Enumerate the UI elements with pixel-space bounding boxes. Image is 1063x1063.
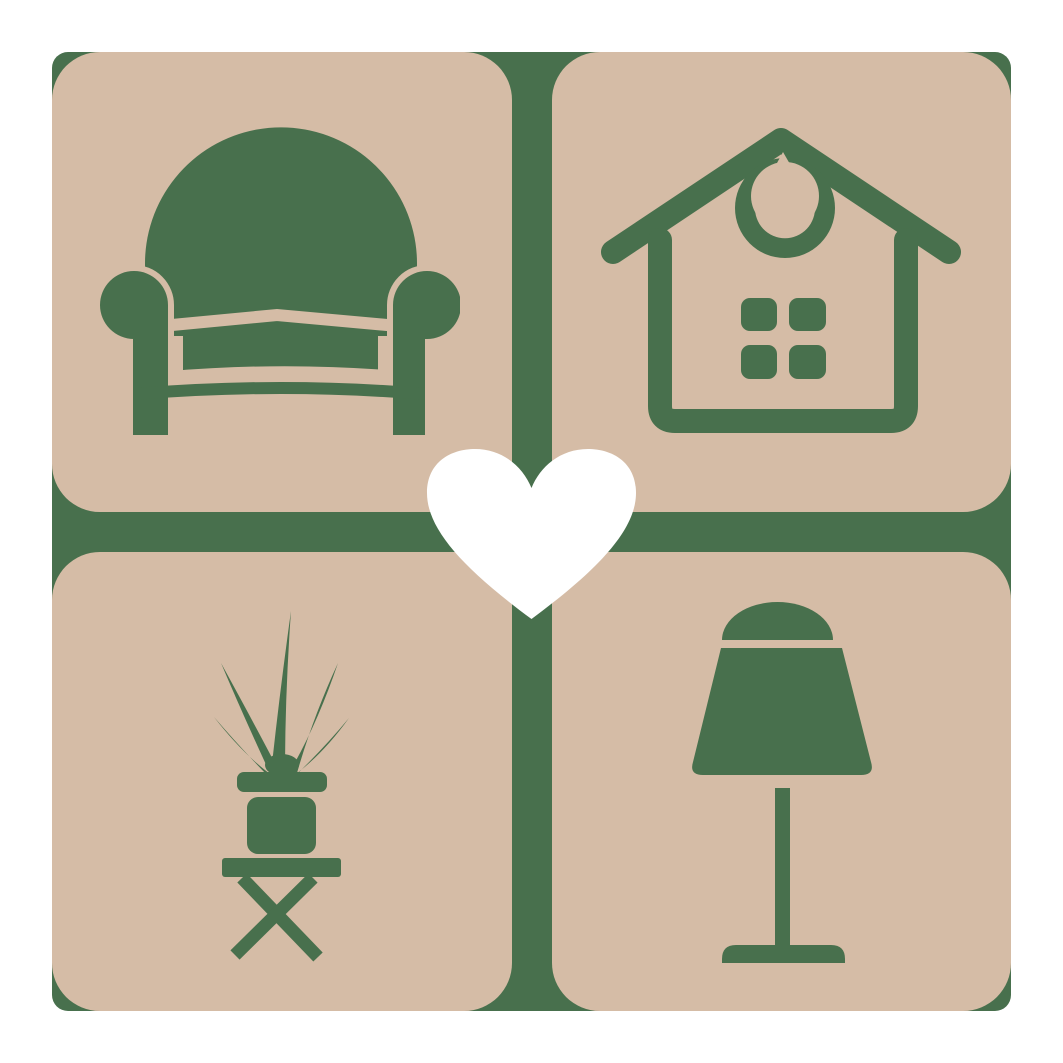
- armchair-icon: [100, 124, 460, 444]
- potted-plant-icon: [185, 605, 385, 965]
- lamp-stem: [775, 788, 790, 950]
- window-panes: [741, 298, 826, 379]
- stool-top: [222, 858, 341, 877]
- house-icon: [596, 118, 976, 448]
- pot-body: [247, 797, 316, 854]
- lamp-cap: [722, 602, 833, 640]
- lamp-base: [722, 945, 845, 963]
- heart-icon: [421, 443, 642, 625]
- logo-frame: [52, 52, 1011, 1011]
- pot-rim: [237, 772, 327, 792]
- stool-legs: [235, 878, 318, 957]
- plant-leaves: [214, 611, 349, 779]
- lamp-shade: [692, 648, 872, 775]
- table-lamp-icon: [675, 585, 895, 965]
